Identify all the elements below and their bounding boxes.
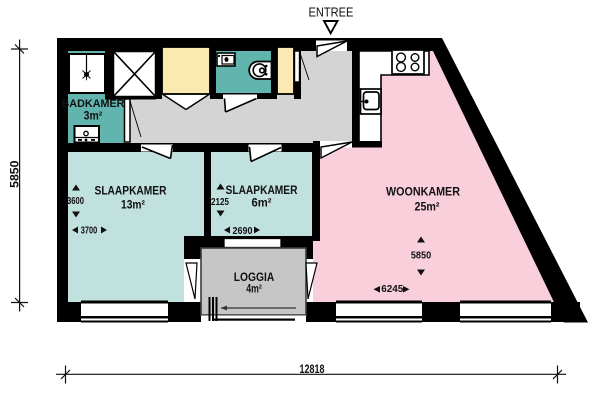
svg-text:5850: 5850 bbox=[8, 160, 22, 188]
svg-text:25m²: 25m² bbox=[415, 201, 440, 214]
svg-text:3700: 3700 bbox=[81, 224, 97, 236]
svg-text:3600: 3600 bbox=[67, 195, 84, 206]
svg-text:4m²: 4m² bbox=[246, 283, 262, 295]
svg-text:2690: 2690 bbox=[232, 225, 252, 237]
svg-text:BADKAMER: BADKAMER bbox=[62, 98, 125, 110]
svg-text:LOGGIA: LOGGIA bbox=[234, 271, 274, 284]
svg-text:5850: 5850 bbox=[411, 250, 432, 262]
svg-text:13m²: 13m² bbox=[121, 199, 145, 212]
svg-text:2125: 2125 bbox=[211, 196, 229, 207]
svg-text:6m²: 6m² bbox=[252, 196, 272, 210]
svg-text:ENTREE: ENTREE bbox=[309, 5, 354, 20]
svg-text:12818: 12818 bbox=[300, 364, 325, 376]
svg-text:6245: 6245 bbox=[381, 284, 403, 295]
svg-text:3m²: 3m² bbox=[84, 110, 103, 123]
svg-text:SLAAPKAMER: SLAAPKAMER bbox=[95, 185, 167, 198]
svg-text:WOONKAMER: WOONKAMER bbox=[386, 186, 461, 199]
